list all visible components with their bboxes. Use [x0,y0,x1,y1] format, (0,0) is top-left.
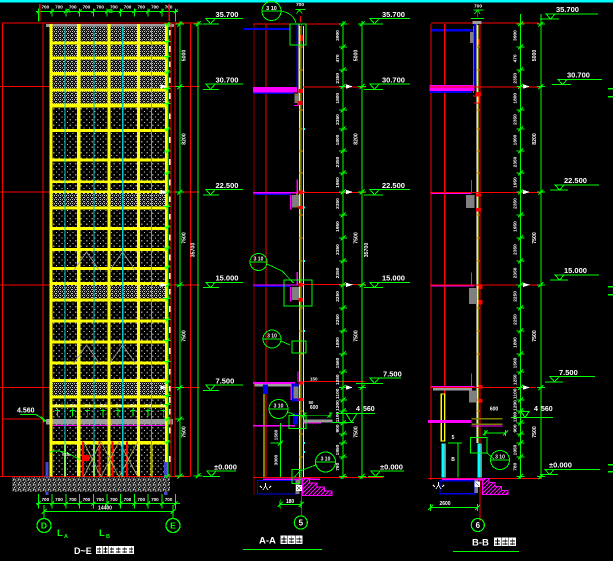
svg-text:700: 700 [296,2,304,8]
svg-text:700: 700 [137,5,145,10]
svg-text:700: 700 [83,5,91,10]
svg-text:±0.000: ±0.000 [380,462,403,471]
svg-text:35.700: 35.700 [216,10,239,19]
svg-text:B-B: B-B [472,538,489,549]
svg-text:1560: 1560 [335,357,341,368]
svg-text:1800: 1800 [335,134,341,145]
svg-text:30.700: 30.700 [216,75,239,84]
svg-text:5: 5 [452,435,455,441]
svg-text:780: 780 [335,462,341,470]
svg-text:2350: 2350 [513,156,519,167]
svg-text:30.700: 30.700 [567,71,590,80]
svg-text:700: 700 [137,497,145,502]
svg-text:4: 4 [356,406,360,413]
svg-text:3900: 3900 [335,30,341,41]
svg-text:700: 700 [96,5,104,10]
svg-text:2250: 2250 [513,291,519,302]
svg-text:C4: C4 [160,403,166,409]
svg-text:700: 700 [474,4,482,10]
svg-text:2350: 2350 [335,244,341,255]
svg-text:15.000: 15.000 [564,266,587,275]
svg-text:780: 780 [513,462,519,470]
svg-text:7.500: 7.500 [216,376,235,385]
svg-text:22.500: 22.500 [564,176,587,185]
svg-text:2350: 2350 [335,73,341,84]
svg-text:C4: C4 [130,403,136,409]
svg-text:B: B [106,534,110,540]
svg-text:C4: C4 [145,403,151,409]
svg-text:700: 700 [55,5,63,10]
svg-text:7500: 7500 [532,330,538,342]
svg-text:7500: 7500 [354,232,360,244]
svg-text:560: 560 [541,406,553,413]
svg-text:2350: 2350 [513,73,519,84]
svg-text:700: 700 [151,497,159,502]
svg-text:900: 900 [335,424,341,432]
svg-text:2350: 2350 [335,156,341,167]
svg-text:1950: 1950 [335,221,341,232]
svg-text:±0.000: ±0.000 [549,461,572,470]
svg-text:35.700: 35.700 [556,5,579,14]
svg-text:1950: 1950 [513,221,519,232]
svg-text:2350: 2350 [513,244,519,255]
svg-text:22.500: 22.500 [216,181,239,190]
svg-text:470: 470 [335,54,341,62]
svg-text:A-A: A-A [259,536,276,547]
svg-text:E: E [170,521,176,531]
svg-text:15.000: 15.000 [382,274,405,283]
svg-text:A: A [67,9,71,15]
svg-text:5000: 5000 [182,50,188,62]
svg-text:1200: 1200 [335,400,341,411]
svg-text:C4: C4 [85,403,91,409]
svg-text:A: A [64,534,68,540]
svg-text:35.700: 35.700 [382,10,405,19]
svg-text:C4: C4 [70,403,76,409]
svg-text:2350: 2350 [335,114,341,125]
svg-text:3 10: 3 10 [267,334,277,340]
svg-text:C4: C4 [54,403,60,409]
svg-text:5: 5 [299,519,304,528]
svg-text:7500: 7500 [532,232,538,244]
svg-text:700: 700 [110,497,118,502]
svg-text:50: 50 [309,400,314,405]
svg-text:C4: C4 [115,403,121,409]
svg-text:14400: 14400 [98,506,112,512]
svg-text:700: 700 [151,5,159,10]
svg-text:C4: C4 [100,403,106,409]
svg-text:35700: 35700 [191,243,197,258]
svg-text:2350: 2350 [335,267,341,278]
svg-text:4.560: 4.560 [17,408,35,415]
svg-text:1250: 1250 [335,374,341,385]
svg-text:3000: 3000 [274,454,280,465]
svg-text:7500: 7500 [532,426,538,438]
svg-text:3 10: 3 10 [495,455,505,461]
svg-text:D: D [41,521,47,531]
svg-text:700: 700 [41,5,49,10]
svg-text:8200: 8200 [354,133,360,145]
svg-text:1100: 1100 [513,411,519,422]
svg-text:7.500: 7.500 [383,369,402,378]
svg-text:22.500: 22.500 [382,181,405,190]
svg-text:700: 700 [124,5,132,10]
svg-text:L: L [57,528,63,539]
svg-text:35700: 35700 [364,243,370,258]
svg-text:600: 600 [490,407,499,413]
svg-text:15.000: 15.000 [216,274,239,283]
svg-text:1560: 1560 [513,357,519,368]
svg-text:B: B [451,457,455,463]
svg-text:2350: 2350 [513,114,519,125]
svg-text:470: 470 [513,54,519,62]
svg-text:B: B [109,9,113,15]
svg-text:1800: 1800 [335,337,341,348]
svg-text:1100: 1100 [335,388,341,399]
svg-text:8200: 8200 [532,133,538,145]
svg-text:1950: 1950 [513,444,519,455]
svg-text:560: 560 [363,406,375,413]
svg-text:1800: 1800 [335,93,341,104]
svg-text:D~E: D~E [74,546,92,556]
svg-text:7500: 7500 [354,330,360,342]
svg-text:2350: 2350 [513,267,519,278]
svg-text:600: 600 [310,405,319,411]
svg-text:#15: #15 [62,452,70,457]
svg-text:5000: 5000 [354,50,360,62]
svg-text:3900: 3900 [513,30,519,41]
svg-text:7500: 7500 [182,232,188,244]
svg-text:700: 700 [69,497,77,502]
svg-text:3 10: 3 10 [254,257,264,263]
svg-text:700: 700 [96,497,104,502]
svg-text:700: 700 [165,497,173,502]
svg-text:1800: 1800 [513,93,519,104]
svg-text:1560: 1560 [274,429,280,440]
svg-text:3 10: 3 10 [274,404,284,410]
svg-text:7500: 7500 [354,426,360,438]
svg-text:1800: 1800 [513,134,519,145]
svg-text:2350: 2350 [513,198,519,209]
svg-text:7500: 7500 [182,330,188,342]
svg-text:6: 6 [476,521,481,530]
svg-text:1100: 1100 [513,388,519,399]
svg-text:1950: 1950 [513,177,519,188]
svg-text:700: 700 [55,497,63,502]
svg-text:3 10: 3 10 [266,6,277,12]
svg-text:1800: 1800 [513,337,519,348]
svg-text:700: 700 [83,497,91,502]
svg-text:1950: 1950 [335,444,341,455]
svg-text:150: 150 [310,377,318,382]
svg-text:1200: 1200 [513,400,519,411]
svg-text:8200: 8200 [182,133,188,145]
svg-text:2250: 2250 [513,314,519,325]
svg-text:180: 180 [286,499,295,505]
svg-text:L: L [99,528,105,539]
svg-text:±0.000: ±0.000 [214,462,237,471]
svg-text:3 10: 3 10 [321,457,331,463]
svg-text:900: 900 [513,424,519,432]
svg-text:1250: 1250 [513,374,519,385]
svg-text:2350: 2350 [335,198,341,209]
svg-text:30.700: 30.700 [382,75,405,84]
svg-text:2250: 2250 [335,291,341,302]
svg-text:5000: 5000 [532,50,538,62]
svg-text:2600: 2600 [439,501,450,507]
svg-text:4: 4 [534,406,538,413]
svg-text:7500: 7500 [182,426,188,438]
svg-text:2250: 2250 [335,314,341,325]
svg-text:1950: 1950 [335,177,341,188]
svg-text:7.500: 7.500 [559,368,578,377]
svg-text:700: 700 [124,497,132,502]
svg-text:700: 700 [41,497,49,502]
